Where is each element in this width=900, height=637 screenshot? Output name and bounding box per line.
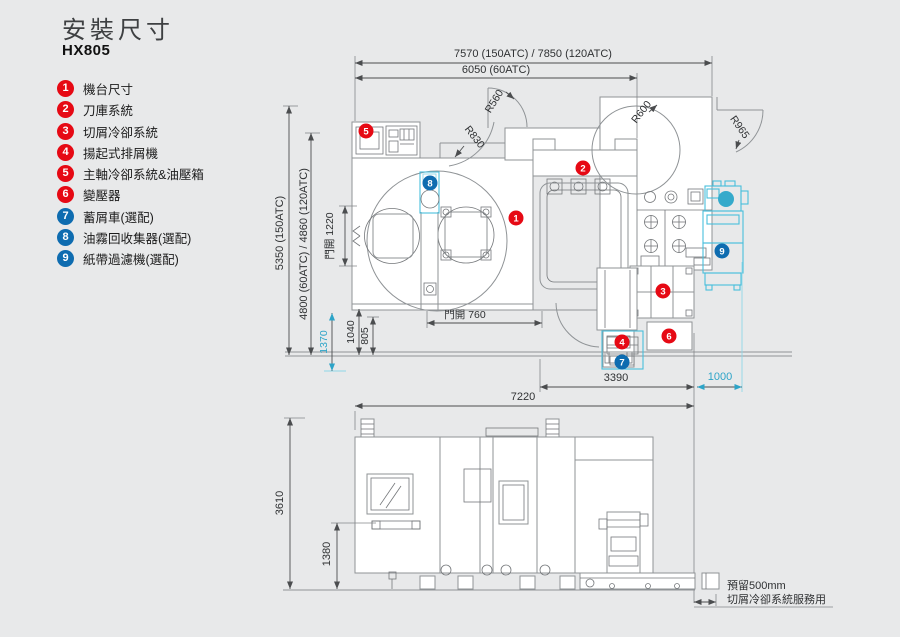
filter-drum xyxy=(718,191,734,207)
front-view-machine xyxy=(283,419,719,590)
dim-805: 805 xyxy=(359,327,371,345)
badge-5: 5 xyxy=(359,124,374,139)
radius-r830: R830 xyxy=(462,124,487,151)
radius-r560: R560 xyxy=(483,87,507,115)
dim-depth-overall: 5350 (150ATC) xyxy=(274,196,286,270)
technical-drawing: 7570 (150ATC) / 7850 (120ATC) 6050 (60AT… xyxy=(0,0,900,637)
badge-3-number: 3 xyxy=(660,287,665,298)
badge-7-number: 7 xyxy=(619,358,624,369)
badge-2: 2 xyxy=(576,161,591,176)
dim-1370: 1370 xyxy=(318,330,330,354)
dim-width-overall: 7570 (150ATC) / 7850 (120ATC) xyxy=(454,48,612,60)
dim-front-1380: 1380 xyxy=(321,542,333,566)
dim-1000: 1000 xyxy=(708,371,732,383)
badge-8: 8 xyxy=(423,176,438,191)
badge-6: 6 xyxy=(662,329,677,344)
service-note-line1: 預留500mm xyxy=(727,579,786,592)
badge-9: 9 xyxy=(715,244,730,259)
dim-door-side: 門開 1220 xyxy=(324,212,336,259)
badge-3: 3 xyxy=(656,284,671,299)
dim-3390: 3390 xyxy=(604,372,628,384)
badge-1-number: 1 xyxy=(513,214,519,225)
dim-front-height: 3610 xyxy=(274,491,286,515)
badge-7: 7 xyxy=(615,355,630,370)
dim-front-width: 7220 xyxy=(511,391,535,403)
badge-6-number: 6 xyxy=(666,332,671,343)
badge-4-number: 4 xyxy=(619,338,625,349)
badge-4: 4 xyxy=(615,335,630,350)
installation-dimensions-page: 安裝尺寸 HX805 1機台尺寸 2刀庫系統 3切屑冷卻系統 4揚起式排屑機 5… xyxy=(0,0,900,637)
service-note-line2: 切屑冷卻系統服務用 xyxy=(727,592,826,606)
badge-9-number: 9 xyxy=(719,247,724,258)
dim-width-60atc: 6050 (60ATC) xyxy=(462,64,530,76)
dim-1040: 1040 xyxy=(345,320,357,344)
badge-1: 1 xyxy=(509,211,524,226)
badge-8-number: 8 xyxy=(427,179,432,190)
dim-depth-inner: 4800 (60ATC) / 4860 (120ATC) xyxy=(298,168,310,320)
dim-door-front: 門開 760 xyxy=(444,309,486,321)
badge-2-number: 2 xyxy=(580,164,585,175)
radius-r965: R965 xyxy=(727,114,751,142)
badge-5-number: 5 xyxy=(363,127,369,138)
